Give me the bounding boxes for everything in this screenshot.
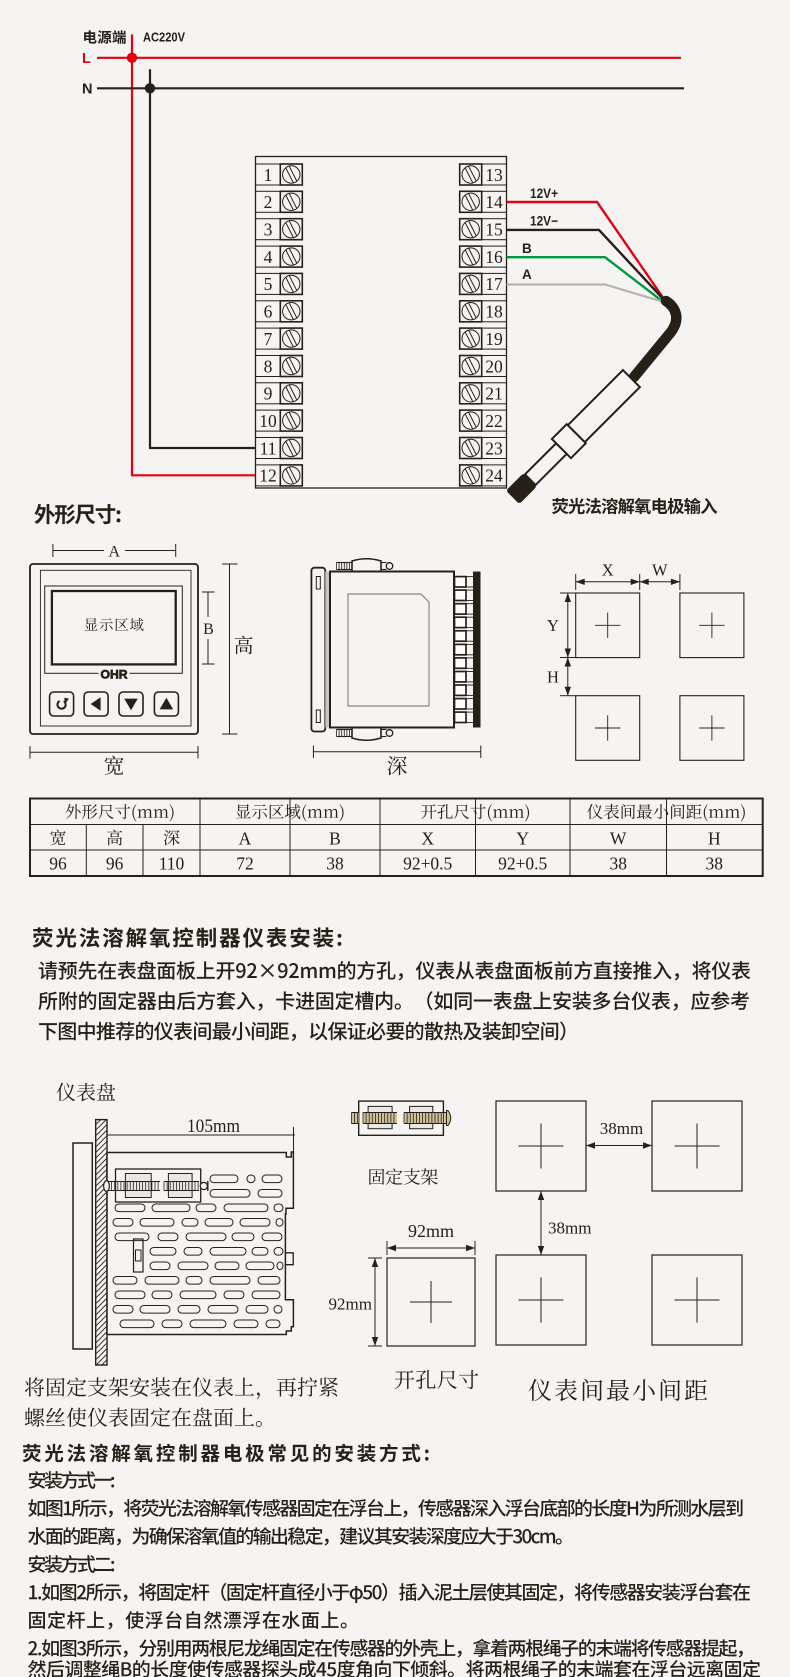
- svg-text:96: 96: [49, 853, 67, 873]
- svg-text:12V−: 12V−: [530, 213, 558, 228]
- svg-text:72: 72: [236, 853, 254, 873]
- svg-text:A: A: [522, 267, 532, 282]
- svg-text:2: 2: [264, 192, 273, 212]
- svg-text:OHR: OHR: [101, 668, 128, 682]
- svg-text:38: 38: [609, 853, 627, 873]
- svg-text:B: B: [203, 621, 214, 638]
- svg-text:92+0.5: 92+0.5: [498, 853, 547, 873]
- svg-text:20: 20: [485, 356, 503, 376]
- svg-text:W: W: [610, 828, 627, 848]
- svg-text:92mm: 92mm: [329, 1295, 372, 1314]
- svg-text:B: B: [329, 828, 341, 848]
- svg-text:11: 11: [260, 438, 277, 458]
- svg-text:12V+: 12V+: [530, 186, 558, 201]
- svg-text:38mm: 38mm: [548, 1219, 591, 1238]
- svg-text:AC220V: AC220V: [143, 30, 185, 45]
- svg-text:21: 21: [485, 384, 503, 404]
- svg-text:13: 13: [485, 165, 503, 185]
- svg-text:Y: Y: [516, 828, 529, 848]
- svg-text:4: 4: [264, 247, 273, 267]
- svg-text:3: 3: [264, 220, 273, 240]
- svg-text:14: 14: [485, 192, 503, 212]
- svg-text:22: 22: [485, 411, 503, 431]
- svg-text:A: A: [239, 828, 252, 848]
- svg-text:H: H: [547, 667, 559, 686]
- svg-text:110: 110: [159, 853, 185, 873]
- svg-text:X: X: [602, 560, 614, 579]
- svg-text:B: B: [522, 241, 532, 256]
- svg-text:96: 96: [106, 853, 124, 873]
- svg-text:38mm: 38mm: [600, 1119, 643, 1138]
- svg-text:24: 24: [485, 466, 503, 486]
- svg-text:17: 17: [485, 274, 503, 294]
- svg-text:12: 12: [259, 466, 277, 486]
- svg-text:15: 15: [485, 220, 503, 240]
- svg-text:9: 9: [264, 384, 273, 404]
- svg-text:16: 16: [485, 247, 503, 267]
- svg-text:23: 23: [485, 438, 503, 458]
- svg-text:19: 19: [485, 329, 503, 349]
- svg-text:10: 10: [259, 411, 277, 431]
- svg-text:92mm: 92mm: [408, 1221, 454, 1241]
- svg-text:6: 6: [264, 302, 273, 322]
- svg-text:X: X: [421, 828, 434, 848]
- svg-text:38: 38: [706, 853, 724, 873]
- svg-text:N: N: [82, 82, 92, 98]
- svg-text:38: 38: [326, 853, 344, 873]
- svg-text:7: 7: [264, 329, 273, 349]
- svg-text:5: 5: [264, 274, 273, 294]
- svg-text:8: 8: [264, 356, 273, 376]
- svg-text:92+0.5: 92+0.5: [403, 853, 452, 873]
- svg-text:H: H: [708, 828, 721, 848]
- svg-text:18: 18: [485, 302, 503, 322]
- svg-text:W: W: [652, 560, 668, 579]
- svg-text:105mm: 105mm: [187, 1116, 240, 1137]
- svg-text:Y: Y: [547, 616, 559, 635]
- svg-text:1: 1: [264, 165, 273, 185]
- svg-text:A: A: [109, 543, 121, 560]
- svg-text:L: L: [82, 51, 91, 67]
